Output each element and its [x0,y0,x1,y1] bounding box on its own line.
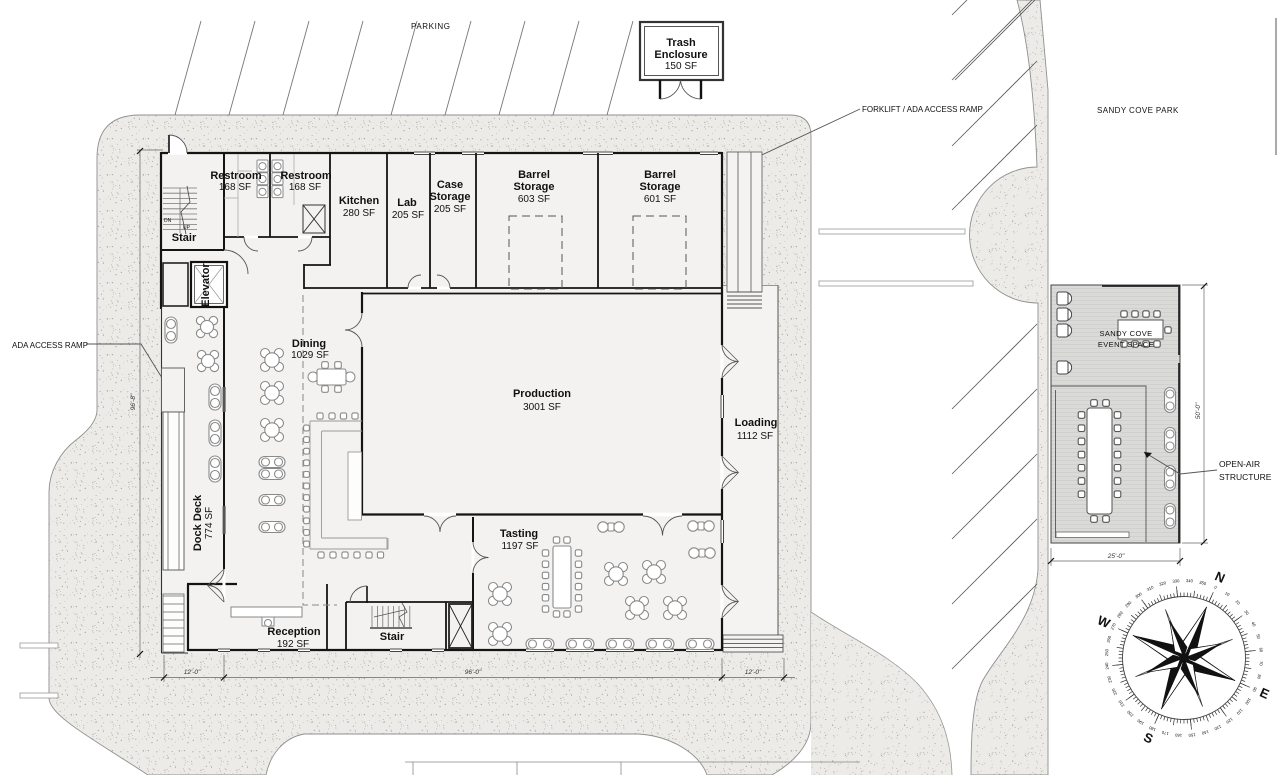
svg-text:603 SF: 603 SF [518,194,550,205]
svg-text:3001 SF: 3001 SF [523,402,561,413]
svg-text:1112 SF: 1112 SF [737,431,773,442]
svg-text:ADA ACCESS RAMP: ADA ACCESS RAMP [12,341,88,350]
svg-text:Reception: Reception [267,626,320,638]
svg-text:SANDY COVE: SANDY COVE [1099,329,1152,338]
svg-text:OPEN-AIR: OPEN-AIR [1219,459,1260,469]
svg-text:STRUCTURE: STRUCTURE [1219,472,1272,482]
svg-text:240: 240 [1104,662,1110,670]
svg-text:330: 330 [1172,578,1180,584]
svg-text:96'-8": 96'-8" [130,393,137,410]
svg-text:50'-0": 50'-0" [1195,402,1202,419]
svg-text:Restroom: Restroom [210,170,262,182]
svg-text:Case: Case [437,179,463,191]
svg-text:205 SF: 205 SF [434,204,466,215]
svg-text:Storage: Storage [514,181,555,193]
svg-text:12'-0": 12'-0" [745,669,762,676]
svg-text:25'-0": 25'-0" [1107,553,1125,560]
svg-text:601 SF: 601 SF [644,194,676,205]
svg-text:205 SF: 205 SF [392,210,424,221]
svg-text:DN: DN [164,218,172,224]
svg-text:280 SF: 280 SF [343,208,375,219]
svg-text:Stair: Stair [380,631,405,643]
svg-text:Barrel: Barrel [644,169,676,181]
svg-text:Storage: Storage [640,181,681,193]
svg-text:1197 SF: 1197 SF [501,541,538,552]
svg-text:340: 340 [1186,578,1194,584]
svg-text:Lab: Lab [397,197,417,209]
svg-text:Elevator: Elevator [200,263,212,307]
svg-text:96'-0": 96'-0" [465,669,482,676]
svg-text:Restroom: Restroom [280,170,332,182]
svg-text:150: 150 [1188,732,1196,738]
svg-text:Dining: Dining [292,338,326,350]
svg-text:168 SF: 168 SF [289,182,321,193]
svg-text:Tasting: Tasting [500,528,538,540]
svg-text:Barrel: Barrel [518,169,550,181]
svg-text:160: 160 [1174,733,1182,739]
svg-text:774 SF: 774 SF [204,507,215,539]
svg-text:Loading: Loading [735,417,778,429]
svg-text:UP: UP [183,225,191,231]
svg-text:168 SF: 168 SF [219,182,251,193]
svg-text:Kitchen: Kitchen [339,195,380,207]
svg-text:Trash: Trash [666,37,696,49]
svg-text:PARKING: PARKING [411,22,451,31]
svg-text:1029 SF: 1029 SF [291,350,329,361]
svg-text:Storage: Storage [430,191,471,203]
svg-text:SANDY COVE PARK: SANDY COVE PARK [1097,106,1179,115]
svg-text:Dock Deck: Dock Deck [192,494,204,551]
svg-text:Enclosure: Enclosure [654,49,707,61]
svg-text:EVENT SPACE: EVENT SPACE [1098,340,1154,349]
svg-text:150 SF: 150 SF [665,61,697,72]
svg-text:12'-0": 12'-0" [184,669,201,676]
svg-text:192 SF: 192 SF [277,639,309,650]
svg-text:Production: Production [513,388,571,400]
svg-text:FORKLIFT / ADA ACCESS RAMP: FORKLIFT / ADA ACCESS RAMP [862,105,983,114]
svg-text:Stair: Stair [172,232,197,244]
svg-text:250: 250 [1104,648,1110,656]
